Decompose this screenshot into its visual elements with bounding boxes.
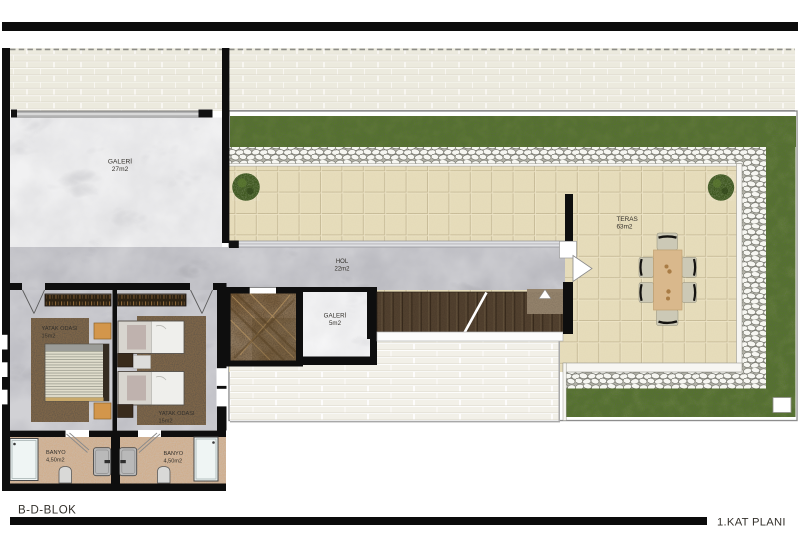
svg-text:63m2: 63m2 [617, 224, 633, 231]
svg-text:TERAS: TERAS [617, 216, 638, 223]
svg-text:BANYO: BANYO [164, 451, 184, 457]
svg-text:GALERİ: GALERİ [108, 157, 132, 166]
svg-text:B-D-BLOK: B-D-BLOK [18, 505, 76, 517]
svg-text:4,50m2: 4,50m2 [46, 458, 65, 464]
svg-text:YATAK ODASI: YATAK ODASI [159, 411, 196, 417]
svg-text:GALERİ: GALERİ [324, 313, 347, 320]
svg-text:HOL: HOL [336, 259, 349, 265]
svg-text:1.KAT PLANI: 1.KAT PLANI [717, 517, 786, 529]
svg-text:15m2: 15m2 [42, 334, 56, 340]
svg-text:27m2: 27m2 [112, 166, 129, 173]
svg-text:15m2: 15m2 [159, 419, 173, 425]
svg-text:5m2: 5m2 [329, 320, 342, 327]
svg-text:4,50m2: 4,50m2 [164, 459, 183, 465]
svg-text:22m2: 22m2 [334, 267, 350, 273]
svg-text:BANYO: BANYO [46, 450, 66, 456]
svg-text:YATAK ODASI: YATAK ODASI [42, 326, 79, 332]
